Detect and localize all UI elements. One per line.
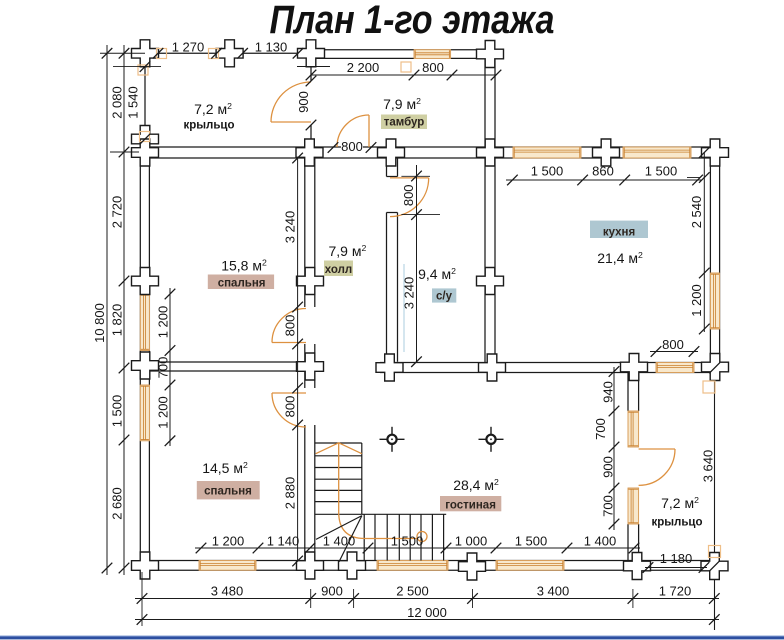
svg-text:2 880: 2 880	[283, 477, 298, 510]
svg-text:14,5 м2: 14,5 м2	[202, 460, 248, 476]
svg-text:1 200: 1 200	[212, 534, 245, 549]
svg-text:700: 700	[601, 495, 616, 517]
svg-text:1 500: 1 500	[110, 395, 125, 428]
svg-text:7,9 м2: 7,9 м2	[383, 96, 421, 112]
svg-text:900: 900	[296, 91, 311, 113]
svg-text:2 200: 2 200	[347, 60, 380, 75]
svg-text:2 680: 2 680	[110, 487, 125, 520]
svg-text:1 200: 1 200	[689, 284, 704, 317]
svg-text:кухня: кухня	[603, 227, 635, 239]
svg-text:1 140: 1 140	[267, 534, 300, 549]
svg-text:7,9 м2: 7,9 м2	[328, 243, 366, 259]
svg-text:2 540: 2 540	[689, 196, 704, 229]
svg-text:900: 900	[601, 456, 616, 478]
svg-text:800: 800	[662, 337, 684, 352]
svg-text:1 400: 1 400	[323, 534, 356, 549]
svg-text:700: 700	[156, 357, 171, 379]
svg-text:гостиная: гостиная	[445, 500, 496, 512]
svg-text:крыльцо: крыльцо	[183, 120, 234, 132]
svg-text:2 080: 2 080	[110, 86, 125, 119]
svg-text:1 820: 1 820	[110, 304, 125, 337]
svg-text:860: 860	[592, 164, 614, 179]
svg-text:900: 900	[321, 584, 343, 599]
svg-text:800: 800	[341, 139, 363, 154]
svg-text:1 720: 1 720	[659, 584, 692, 599]
svg-text:1 200: 1 200	[156, 396, 171, 429]
svg-text:15,8 м2: 15,8 м2	[221, 258, 267, 274]
svg-text:1 270: 1 270	[172, 40, 205, 55]
svg-text:700: 700	[593, 418, 608, 440]
svg-text:7,2 м2: 7,2 м2	[194, 101, 232, 117]
svg-text:спальня: спальня	[218, 278, 266, 290]
svg-text:тамбур: тамбур	[384, 117, 425, 129]
svg-text:2 500: 2 500	[396, 584, 429, 599]
svg-text:21,4 м2: 21,4 м2	[597, 250, 643, 266]
svg-text:800: 800	[422, 60, 444, 75]
svg-text:3 240: 3 240	[283, 211, 298, 244]
svg-text:1 400: 1 400	[584, 534, 617, 549]
svg-text:800: 800	[283, 315, 298, 337]
svg-text:1 500: 1 500	[515, 534, 548, 549]
svg-text:спальня: спальня	[204, 486, 252, 498]
svg-text:с/у: с/у	[436, 291, 453, 303]
svg-text:2 720: 2 720	[110, 196, 125, 229]
svg-text:3 480: 3 480	[211, 584, 244, 599]
svg-text:1 000: 1 000	[455, 534, 488, 549]
svg-text:3 640: 3 640	[701, 450, 716, 483]
svg-text:7,2 м2: 7,2 м2	[661, 495, 699, 511]
svg-text:9,4 м2: 9,4 м2	[418, 266, 456, 282]
svg-text:800: 800	[401, 184, 416, 206]
svg-text:28,4 м2: 28,4 м2	[453, 477, 499, 493]
svg-text:крыльцо: крыльцо	[651, 517, 702, 529]
svg-text:1 500: 1 500	[531, 164, 564, 179]
svg-text:1 540: 1 540	[126, 86, 141, 119]
svg-text:План 1-го этажа: План 1-го этажа	[270, 0, 555, 42]
svg-text:1 500: 1 500	[645, 164, 678, 179]
svg-text:3 240: 3 240	[402, 277, 417, 310]
svg-text:холл: холл	[325, 264, 352, 276]
svg-text:10 800: 10 800	[92, 303, 107, 343]
svg-text:1 180: 1 180	[660, 551, 693, 566]
svg-text:3 400: 3 400	[537, 584, 570, 599]
svg-text:1 200: 1 200	[156, 306, 171, 339]
svg-text:12 000: 12 000	[407, 605, 447, 620]
svg-text:1 500: 1 500	[391, 534, 424, 549]
svg-text:800: 800	[283, 396, 298, 418]
svg-text:940: 940	[601, 381, 616, 403]
